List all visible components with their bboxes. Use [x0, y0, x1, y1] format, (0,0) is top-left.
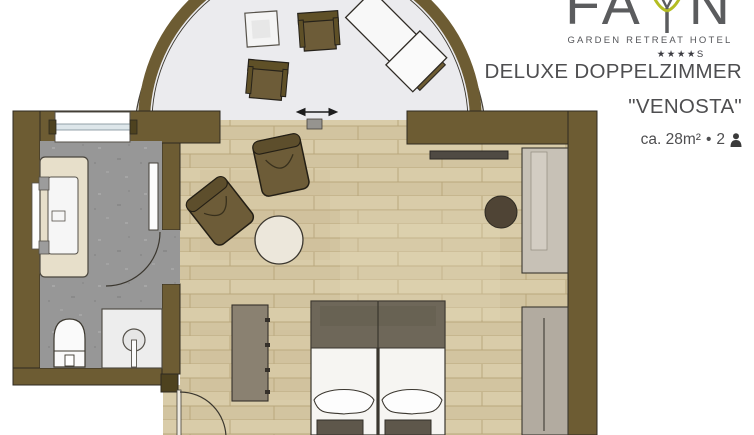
hotel-logo: FA N GARDEN RETREAT HOTEL ★★★★S	[554, 0, 746, 60]
terrace-table	[245, 11, 279, 47]
wardrobe-upper	[522, 148, 568, 273]
star-rating: ★★★★S	[584, 49, 754, 60]
meta-bullet: •	[706, 131, 711, 149]
bathroom	[32, 112, 180, 368]
door-threshold	[307, 119, 322, 129]
logo-y-icon	[647, 0, 687, 34]
room-subtitle: "VENOSTA"	[452, 95, 742, 119]
logo-letters-right: N	[689, 0, 735, 34]
hotel-tagline: GARDEN RETREAT HOTEL	[554, 35, 746, 46]
stars: ★★★★	[657, 49, 697, 60]
room-area: ca. 28m²	[641, 131, 701, 149]
logo-letters-left: FA	[565, 0, 645, 34]
terrace-chair-2	[245, 59, 288, 100]
floorplan-page: FA N GARDEN RETREAT HOTEL ★★★★S DELUXE D…	[0, 0, 754, 435]
bathtub	[39, 157, 88, 277]
shower	[102, 309, 162, 368]
dresser	[232, 305, 270, 401]
bathroom-window-top	[49, 112, 137, 142]
double-bed	[311, 301, 445, 435]
wardrobe-lower	[522, 307, 568, 435]
stool	[485, 196, 517, 228]
room-info: DELUXE DOPPELZIMMER "VENOSTA" ca. 28m² •…	[452, 60, 742, 149]
toilet	[54, 319, 85, 367]
side-table	[255, 216, 303, 264]
terrace-chair-1	[298, 11, 341, 52]
person-icon	[730, 133, 742, 147]
logo-wordmark: FA N	[554, 0, 746, 34]
tv-shelf	[430, 151, 508, 159]
room-meta: ca. 28m² • 2	[452, 131, 742, 149]
pillow-left	[314, 390, 374, 415]
stars-suffix: S	[697, 49, 703, 60]
pillow-right	[382, 390, 442, 415]
room-title: DELUXE DOPPELZIMMER	[452, 60, 742, 84]
room-occupancy: 2	[716, 131, 725, 149]
